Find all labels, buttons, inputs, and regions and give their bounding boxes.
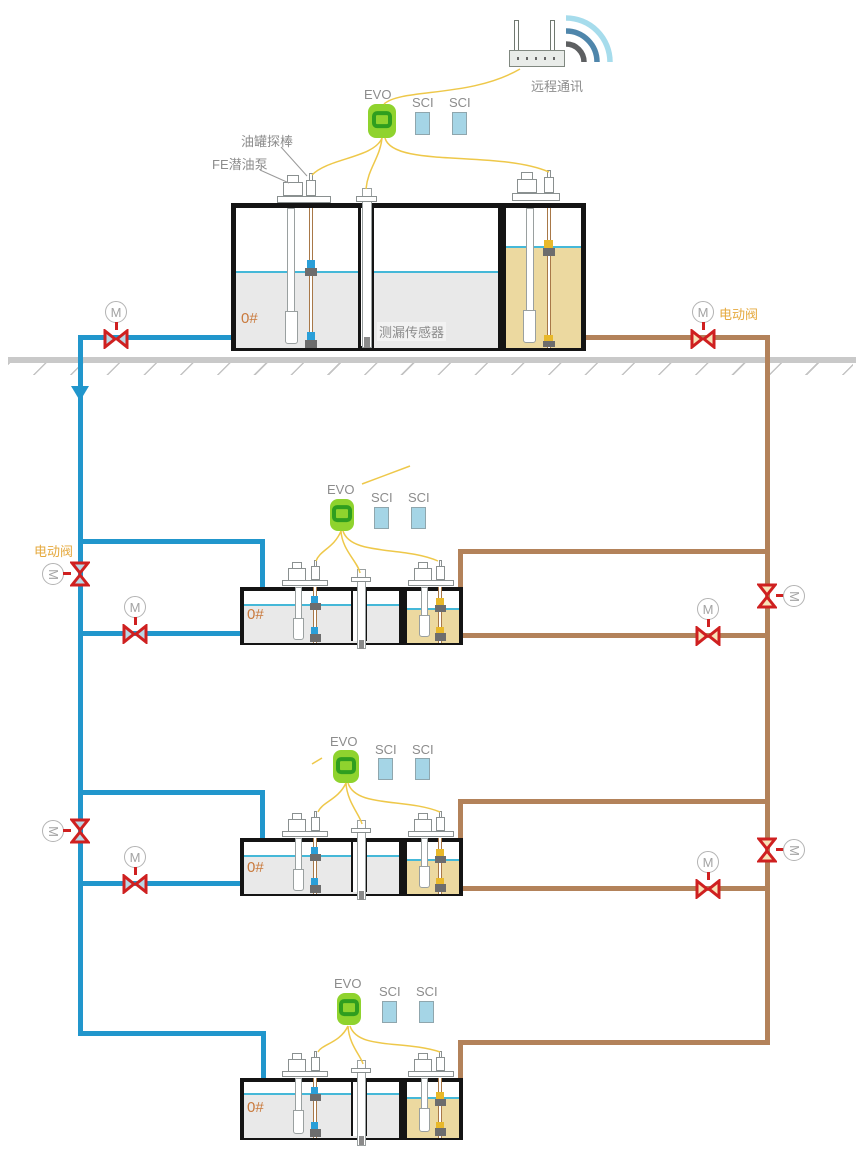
probe-float bbox=[436, 598, 444, 605]
gasoline-pipe-main bbox=[765, 335, 770, 1045]
motor-valve: M bbox=[757, 582, 805, 610]
probe-float bbox=[311, 847, 318, 854]
pump-manifold-flange bbox=[408, 1071, 454, 1077]
probe-float bbox=[311, 878, 318, 885]
motor-valve: M bbox=[102, 301, 130, 349]
motor-label: M bbox=[130, 600, 141, 615]
probe-float bbox=[435, 1128, 446, 1136]
sci-label: SCI bbox=[375, 742, 397, 757]
probe-fitting bbox=[436, 566, 445, 580]
gasoline-pipe bbox=[458, 799, 770, 804]
leak-sensor-tip bbox=[364, 337, 370, 348]
diesel-pipe-main bbox=[78, 335, 83, 1036]
pump-manifold-flange bbox=[282, 831, 328, 837]
pump-tube bbox=[295, 1078, 302, 1114]
leak-tube-flange bbox=[351, 828, 371, 833]
leak-sensor-tube bbox=[362, 188, 372, 348]
gasoline-pipe bbox=[463, 633, 770, 638]
probe-fitting bbox=[436, 1057, 445, 1071]
probe-float bbox=[435, 856, 446, 863]
motor-label: M bbox=[130, 850, 141, 865]
probe-float bbox=[305, 340, 317, 348]
pump-tube bbox=[421, 587, 428, 618]
probe-float bbox=[311, 596, 318, 603]
evo-screen bbox=[339, 999, 359, 1016]
remote-comm-label: 远程通讯 bbox=[531, 76, 583, 95]
diesel-liquid bbox=[244, 1093, 399, 1138]
pump-callout-label: FE潜油泵 bbox=[212, 154, 268, 173]
gasoline-liquid bbox=[407, 1097, 459, 1138]
product-label: 0# bbox=[247, 1099, 264, 1116]
motor-circle: M bbox=[697, 851, 719, 873]
pump-tube bbox=[287, 208, 295, 315]
motor-label: M bbox=[698, 305, 709, 320]
evo-label: EVO bbox=[364, 87, 391, 102]
evo-screen bbox=[336, 757, 356, 774]
flow-arrow-icon bbox=[71, 386, 89, 401]
motor-label: M bbox=[46, 569, 61, 580]
probe-float bbox=[436, 1092, 444, 1099]
submersible-pump bbox=[419, 1108, 430, 1132]
router-antenna bbox=[550, 20, 555, 54]
diesel-liquid bbox=[244, 604, 399, 643]
probe-fitting bbox=[311, 1057, 320, 1071]
motor-valve: M bbox=[694, 851, 722, 899]
probe-float bbox=[310, 854, 321, 861]
gasoline-liquid bbox=[506, 246, 581, 348]
sci-module bbox=[374, 507, 389, 529]
product-label: 0# bbox=[247, 859, 264, 876]
probe-float bbox=[435, 1099, 446, 1106]
diesel-pipe bbox=[80, 1031, 266, 1036]
diesel-pipe bbox=[83, 631, 240, 636]
motor-circle: M bbox=[783, 585, 805, 607]
motor-valve-label: 电动阀 bbox=[719, 304, 758, 323]
evo-label: EVO bbox=[334, 976, 361, 991]
evo-console bbox=[368, 104, 396, 138]
product-label: 0# bbox=[241, 310, 258, 327]
pump-tube bbox=[421, 838, 428, 869]
probe-fitting bbox=[544, 177, 554, 193]
probe-fitting bbox=[311, 817, 320, 831]
probe-float bbox=[435, 633, 446, 641]
probe-fitting bbox=[311, 566, 320, 580]
pump-manifold-flange bbox=[512, 193, 560, 201]
gasoline-pipe bbox=[458, 549, 770, 554]
wifi-signal-icon bbox=[566, 18, 610, 62]
valve-icon bbox=[102, 329, 130, 349]
probe-float bbox=[305, 268, 317, 276]
pump-manifold-flange bbox=[282, 1071, 328, 1077]
evo-label: EVO bbox=[327, 482, 354, 497]
evo-screen bbox=[372, 111, 392, 128]
probe-float bbox=[310, 603, 321, 610]
sci-label: SCI bbox=[412, 95, 434, 110]
motor-circle: M bbox=[692, 301, 714, 323]
probe-float bbox=[435, 605, 446, 612]
valve-icon bbox=[694, 879, 722, 899]
sci-label: SCI bbox=[379, 984, 401, 999]
motor-valve: M bbox=[42, 560, 90, 588]
pump-tube bbox=[421, 1078, 428, 1112]
router-antenna bbox=[514, 20, 519, 54]
valve-icon bbox=[689, 329, 717, 349]
motor-valve: M bbox=[42, 817, 90, 845]
motor-valve: M bbox=[694, 598, 722, 646]
pump-tube bbox=[295, 587, 302, 620]
fuel-probe bbox=[309, 208, 313, 348]
probe-float bbox=[307, 332, 315, 340]
gasoline-liquid bbox=[407, 608, 459, 643]
probe-fitting bbox=[436, 817, 445, 831]
valve-icon bbox=[121, 874, 149, 894]
probe-float bbox=[544, 240, 553, 248]
valve-icon bbox=[70, 560, 90, 588]
sci-module bbox=[415, 758, 430, 780]
pump-manifold-flange bbox=[408, 580, 454, 586]
valve-icon bbox=[757, 836, 777, 864]
submersible-pump bbox=[293, 1110, 304, 1134]
motor-label: M bbox=[787, 845, 802, 856]
probe-float bbox=[311, 1122, 318, 1129]
diesel-liquid bbox=[244, 855, 399, 894]
fuel-station-monitoring-diagram: 0# 测漏传感器 油罐探棒 FE潜油泵 EVO SCI SCI 0# EVO S… bbox=[0, 0, 856, 1154]
pump-tube bbox=[526, 208, 534, 313]
sci-module bbox=[415, 112, 430, 135]
motor-circle: M bbox=[783, 839, 805, 861]
valve-icon bbox=[121, 624, 149, 644]
sci-module bbox=[382, 1001, 397, 1023]
motor-valve: M bbox=[121, 846, 149, 894]
sci-module bbox=[411, 507, 426, 529]
probe-callout-label: 油罐探棒 bbox=[241, 131, 293, 150]
pump-head bbox=[517, 179, 537, 193]
probe-fitting bbox=[306, 180, 316, 196]
sci-label: SCI bbox=[412, 742, 434, 757]
motor-label: M bbox=[46, 826, 61, 837]
diesel-pipe bbox=[80, 539, 265, 544]
diesel-pipe bbox=[83, 881, 240, 886]
motor-circle: M bbox=[42, 563, 64, 585]
motor-valve: M bbox=[689, 301, 717, 349]
submersible-pump bbox=[523, 310, 536, 343]
leak-sensor-tip bbox=[359, 891, 364, 900]
submersible-pump bbox=[293, 618, 304, 640]
fuel-probe bbox=[547, 208, 551, 348]
probe-float bbox=[435, 884, 446, 892]
leak-sensor-tip bbox=[359, 1136, 364, 1145]
probe-float bbox=[310, 634, 321, 642]
gasoline-pipe bbox=[586, 335, 770, 340]
pump-manifold-flange bbox=[277, 196, 331, 203]
leak-sensor-label: 测漏传感器 bbox=[377, 322, 446, 341]
ground-hatch bbox=[8, 363, 853, 375]
sci-module bbox=[452, 112, 467, 135]
sci-module bbox=[378, 758, 393, 780]
pump-manifold-flange bbox=[408, 831, 454, 837]
pump-tube bbox=[295, 838, 302, 871]
leak-sensor-tip bbox=[359, 640, 364, 649]
leak-tube-flange bbox=[351, 577, 371, 582]
motor-valve: M bbox=[121, 596, 149, 644]
pump-head bbox=[283, 182, 303, 196]
motor-circle: M bbox=[124, 846, 146, 868]
leak-tube-flange bbox=[356, 196, 377, 202]
probe-float bbox=[310, 1094, 321, 1101]
motor-label: M bbox=[787, 591, 802, 602]
sci-module bbox=[419, 1001, 434, 1023]
motor-valve-label: 电动阀 bbox=[34, 541, 73, 560]
probe-float bbox=[311, 627, 318, 634]
probe-float bbox=[307, 260, 315, 268]
sci-label: SCI bbox=[408, 490, 430, 505]
valve-icon bbox=[70, 817, 90, 845]
gasoline-liquid bbox=[407, 859, 459, 894]
probe-float bbox=[543, 248, 555, 256]
submersible-pump bbox=[285, 311, 298, 344]
motor-valve: M bbox=[757, 836, 805, 864]
motor-circle: M bbox=[124, 596, 146, 618]
evo-label: EVO bbox=[330, 734, 357, 749]
valve-icon bbox=[757, 582, 777, 610]
motor-label: M bbox=[703, 855, 714, 870]
gasoline-pipe bbox=[463, 886, 770, 891]
leak-tube-flange bbox=[351, 1068, 371, 1073]
tank-divider-wall bbox=[498, 208, 506, 346]
router-leds bbox=[517, 57, 555, 60]
motor-label: M bbox=[703, 602, 714, 617]
probe-float bbox=[543, 341, 555, 347]
evo-console bbox=[337, 993, 361, 1025]
probe-float bbox=[310, 885, 321, 893]
submersible-pump bbox=[419, 866, 430, 888]
motor-circle: M bbox=[105, 301, 127, 323]
probe-float bbox=[310, 1129, 321, 1137]
diesel-pipe bbox=[80, 790, 265, 795]
sci-label: SCI bbox=[416, 984, 438, 999]
motor-circle: M bbox=[697, 598, 719, 620]
evo-console bbox=[333, 750, 359, 783]
tank-inner-wall bbox=[358, 208, 361, 346]
sci-label: SCI bbox=[449, 95, 471, 110]
gasoline-pipe bbox=[458, 1040, 770, 1045]
submersible-pump bbox=[419, 615, 430, 637]
product-label: 0# bbox=[247, 606, 264, 623]
pump-manifold-flange bbox=[282, 580, 328, 586]
probe-float bbox=[436, 849, 444, 856]
probe-float bbox=[311, 1087, 318, 1094]
evo-console bbox=[330, 499, 354, 531]
submersible-pump bbox=[293, 869, 304, 891]
motor-circle: M bbox=[42, 820, 64, 842]
motor-label: M bbox=[111, 305, 122, 320]
valve-icon bbox=[694, 626, 722, 646]
evo-screen bbox=[332, 505, 352, 522]
sci-label: SCI bbox=[371, 490, 393, 505]
